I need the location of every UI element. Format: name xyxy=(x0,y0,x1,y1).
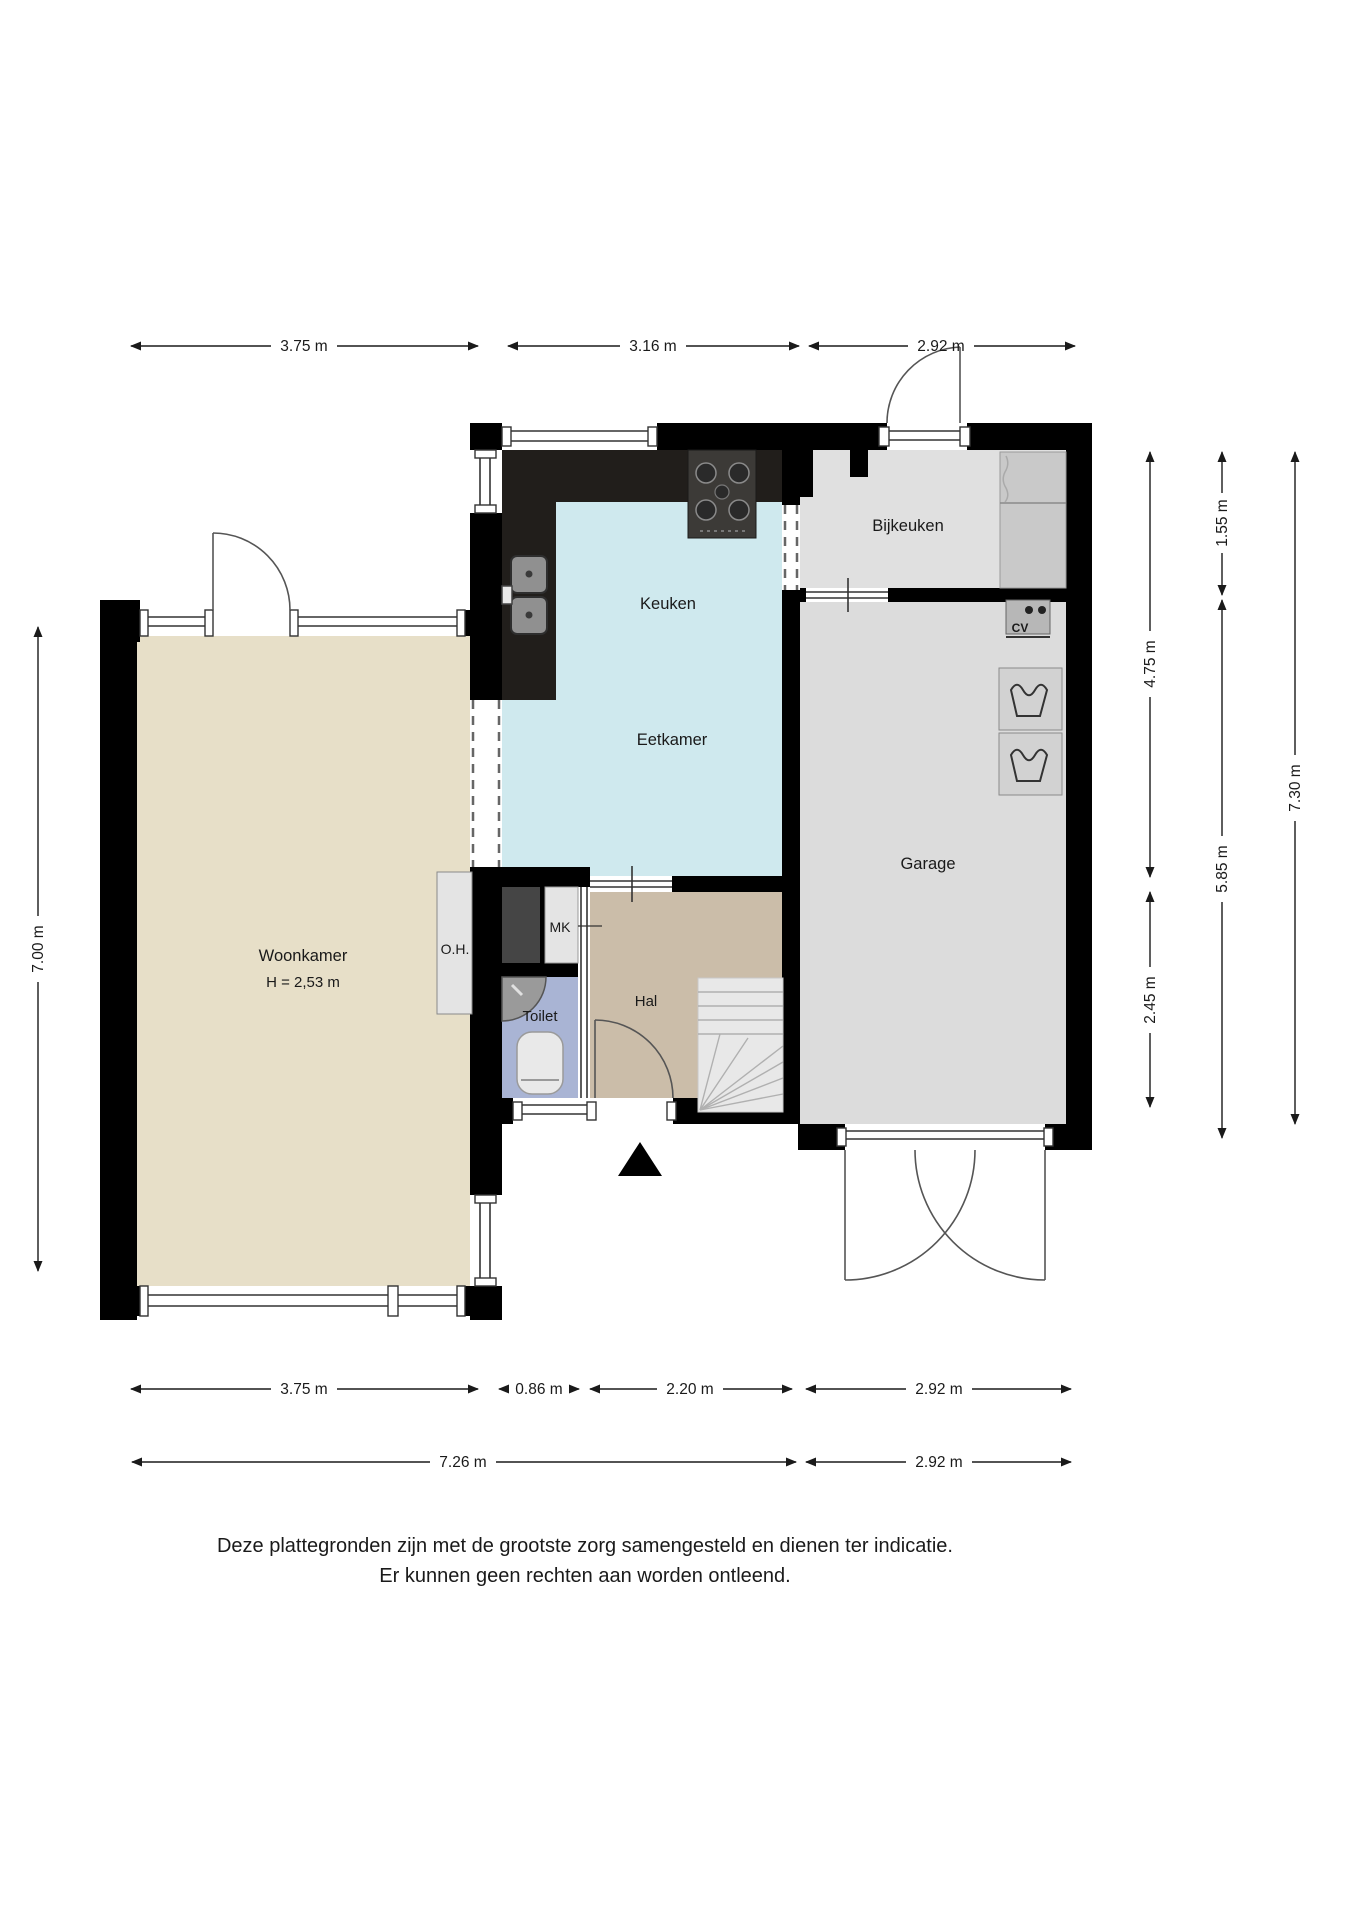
dim-label: 2.92 m xyxy=(917,338,964,355)
window-keuken-top xyxy=(502,423,657,450)
wall-keuken-left xyxy=(470,423,502,1320)
door-bijkeuken-exterior xyxy=(879,347,970,450)
wall-stub-2 xyxy=(850,450,868,477)
opening-keuken-bijkeuken xyxy=(782,505,800,590)
dim-label: 2.45 m xyxy=(1142,976,1159,1023)
dim-label: 7.30 m xyxy=(1287,764,1304,811)
mk-label: MK xyxy=(550,919,572,935)
wall-right xyxy=(1066,423,1092,1150)
toilet-label: Toilet xyxy=(522,1008,558,1025)
dim-right-inner-2: 2.45 m xyxy=(1142,892,1159,1107)
woonkamer-height-label: H = 2,53 m xyxy=(266,974,340,991)
dim-label: 7.26 m xyxy=(439,1454,486,1471)
entrance-marker-icon xyxy=(618,1142,662,1176)
wall-toilet-top xyxy=(502,963,590,977)
disclaimer: Deze plattegronden zijn met de grootste … xyxy=(217,1535,953,1587)
cv-label: CV xyxy=(1012,621,1029,635)
dim-bottom1-2: 0.86 m xyxy=(499,1381,579,1398)
dim-top-3: 2.92 m xyxy=(809,338,1075,355)
dim-bottom1-4: 2.92 m xyxy=(806,1381,1071,1398)
dim-label: 2.20 m xyxy=(666,1381,713,1398)
window-front-sidelight xyxy=(513,1098,595,1124)
door-arc xyxy=(887,347,960,423)
dim-bottom1-1: 3.75 m xyxy=(131,1381,478,1398)
dim-top-1: 3.75 m xyxy=(131,338,478,355)
door-arc xyxy=(213,533,290,610)
garage-door-arc-left xyxy=(845,1150,975,1280)
dim-label: 3.75 m xyxy=(280,338,327,355)
dim-right-middle-1: 1.55 m xyxy=(1214,452,1231,595)
dim-label: 4.75 m xyxy=(1142,640,1159,687)
wall-thin-mk-toilet xyxy=(578,887,590,1098)
toilet-icon xyxy=(517,1032,563,1094)
dim-right-middle-2: 5.85 m xyxy=(1214,600,1231,1138)
eetkamer-label: Eetkamer xyxy=(637,731,708,749)
hal-label: Hal xyxy=(635,993,658,1010)
stove-icon xyxy=(688,450,756,538)
bijkeuken-counter xyxy=(1000,452,1066,588)
dim-label: 3.16 m xyxy=(629,338,676,355)
window-woonkamer-right xyxy=(470,1195,502,1286)
dim-label: 2.92 m xyxy=(915,1454,962,1471)
dim-label: 5.85 m xyxy=(1214,845,1231,892)
garage-label: Garage xyxy=(900,855,955,873)
woonkamer-label: Woonkamer xyxy=(259,947,348,965)
dim-bottom2-2: 2.92 m xyxy=(806,1454,1071,1471)
dim-right-outer-1: 7.30 m xyxy=(1287,452,1304,1124)
garage-door-arc-right xyxy=(915,1150,1045,1280)
wall-closet-divider xyxy=(540,887,545,963)
dim-left-1: 7.00 m xyxy=(30,627,47,1271)
floor-plan: Keuken Eetkamer Bijkeuken Garage Woonkam… xyxy=(0,0,1358,1920)
wall-closet-top xyxy=(502,867,590,887)
washing-machine-icon xyxy=(999,668,1062,730)
disclaimer-line-1: Deze plattegronden zijn met de grootste … xyxy=(217,1535,953,1557)
disclaimer-line-2: Er kunnen geen rechten aan worden ontlee… xyxy=(379,1565,790,1587)
bijkeuken-label: Bijkeuken xyxy=(872,517,944,535)
window-woonkamer-bottom xyxy=(140,1286,465,1316)
dim-label: 2.92 m xyxy=(915,1381,962,1398)
closet-kast xyxy=(502,887,540,963)
dim-label: 7.00 m xyxy=(30,925,47,972)
door-garage xyxy=(837,1124,1053,1280)
window-woonkamer-top xyxy=(140,533,465,636)
oh-label: O.H. xyxy=(441,941,470,957)
washing-machine-icon xyxy=(999,733,1062,795)
dim-label: 1.55 m xyxy=(1214,499,1231,546)
keuken-label: Keuken xyxy=(640,595,696,613)
dim-bottom2-1: 7.26 m xyxy=(132,1454,796,1471)
wall-eetkamer-hal xyxy=(672,876,798,892)
dim-label: 3.75 m xyxy=(280,1381,327,1398)
dim-right-inner-1: 4.75 m xyxy=(1142,452,1159,877)
dim-top-2: 3.16 m xyxy=(508,338,799,355)
staircase xyxy=(698,978,783,1112)
faucet-icon xyxy=(502,586,512,604)
dim-bottom1-3: 2.20 m xyxy=(590,1381,792,1398)
window-keuken-left xyxy=(470,450,502,513)
wall-woonkamer-left xyxy=(100,600,137,1320)
wall-stub-1 xyxy=(800,450,813,497)
dim-label: 0.86 m xyxy=(515,1381,562,1398)
opening-woonkamer-eetkamer xyxy=(470,700,502,867)
